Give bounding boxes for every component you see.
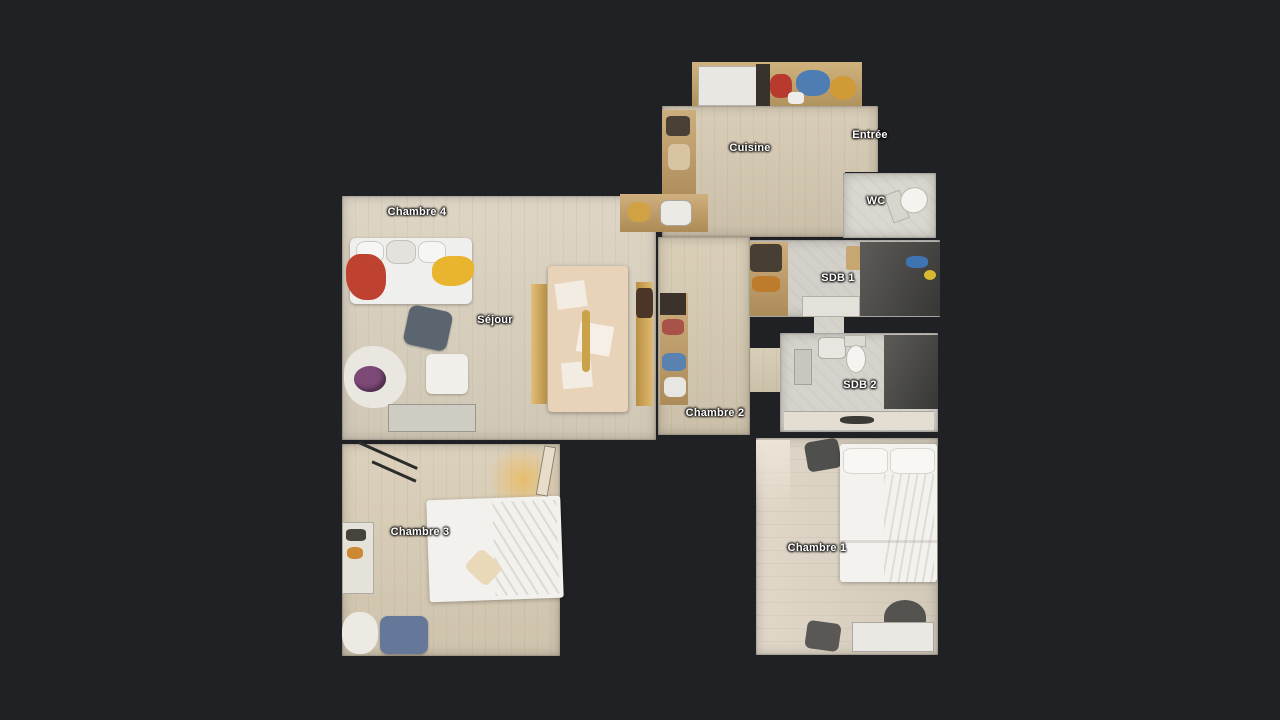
appliance [698, 66, 758, 106]
cabinet-item-light [668, 144, 690, 170]
bench [636, 282, 653, 406]
label-sdb2: SDB 2 [843, 379, 876, 391]
label-sdb1: SDB 1 [821, 272, 854, 284]
label-chambre3: Chambre 3 [391, 526, 450, 538]
wardrobe-item-white [664, 377, 686, 397]
shower-column [794, 349, 812, 385]
room-chambre2[interactable] [658, 237, 750, 435]
floorplan-view: Cuisine Entrée WC SDB 1 SDB 2 Chambre 2 … [0, 0, 1280, 720]
desk3 [342, 522, 374, 594]
label-cuisine: Cuisine [729, 142, 770, 154]
chair [402, 304, 453, 352]
label-chambre4: Chambre 4 [388, 206, 447, 218]
label-chambre2: Chambre 2 [686, 407, 745, 419]
duvet-creases [884, 474, 934, 584]
dining-table [548, 266, 628, 412]
hall-connector [750, 348, 780, 392]
wardrobe-item-dark [660, 293, 686, 315]
label-sejour: Séjour [477, 314, 512, 326]
wardrobe-item-blue [662, 353, 686, 371]
bathroom-closet [746, 242, 788, 316]
closet-item-orange [752, 276, 780, 292]
chair-desk-b [804, 620, 842, 652]
door-swing-line [358, 441, 418, 470]
bed3 [426, 496, 563, 603]
island-sink [660, 200, 692, 226]
desk3-item-orange [347, 547, 363, 559]
counter-pan [830, 76, 856, 100]
paper [554, 280, 587, 310]
label-entree: Entrée [852, 129, 887, 141]
bed1 [840, 444, 937, 582]
pillow [843, 448, 888, 474]
label-wc: WC [867, 195, 886, 207]
blanket-red [346, 254, 386, 300]
shampoo-yellow [924, 270, 936, 280]
table-runner [582, 310, 590, 372]
chair-desk-a [804, 437, 843, 472]
light-patch [756, 440, 790, 510]
counter-item-white [788, 92, 804, 104]
bathroom-doorway [814, 317, 844, 333]
toilet [882, 177, 936, 226]
kitchen-island [620, 194, 708, 232]
shower [860, 242, 940, 316]
bench [531, 284, 547, 404]
corner-pouf [342, 612, 378, 654]
desk1 [852, 622, 934, 652]
vanity [802, 296, 860, 317]
pouf [426, 354, 468, 394]
shampoo-blue [906, 256, 928, 268]
sink [818, 337, 846, 359]
flower-bouquet [354, 366, 386, 392]
room-chambre1[interactable] [756, 438, 938, 655]
island-item-gold [628, 202, 650, 222]
room-wc[interactable] [843, 173, 936, 238]
bag-on-bench [636, 288, 653, 318]
counter-item-dark [756, 64, 770, 106]
pillow [890, 448, 935, 474]
wardrobe-item-red [662, 319, 684, 335]
kitchen-counter [692, 62, 862, 108]
desk3-item-dark [346, 529, 366, 541]
cabinet-item-dark [666, 116, 690, 136]
toilet2-bowl [846, 345, 866, 373]
label-chambre1: Chambre 1 [788, 542, 847, 554]
closet-item-dark [750, 244, 782, 272]
vanity-items [840, 416, 874, 424]
shower2 [884, 335, 938, 409]
blanket-yellow [432, 256, 474, 286]
console-desk [388, 404, 476, 432]
wardrobe [660, 293, 688, 405]
duvet-creases [492, 500, 559, 596]
room-chambre3[interactable] [342, 444, 560, 656]
kitchen-cabinet [662, 110, 696, 202]
sofa [350, 238, 472, 304]
chair-blue [380, 616, 428, 654]
sofa-pillow [386, 240, 416, 264]
vanity2 [784, 411, 934, 430]
